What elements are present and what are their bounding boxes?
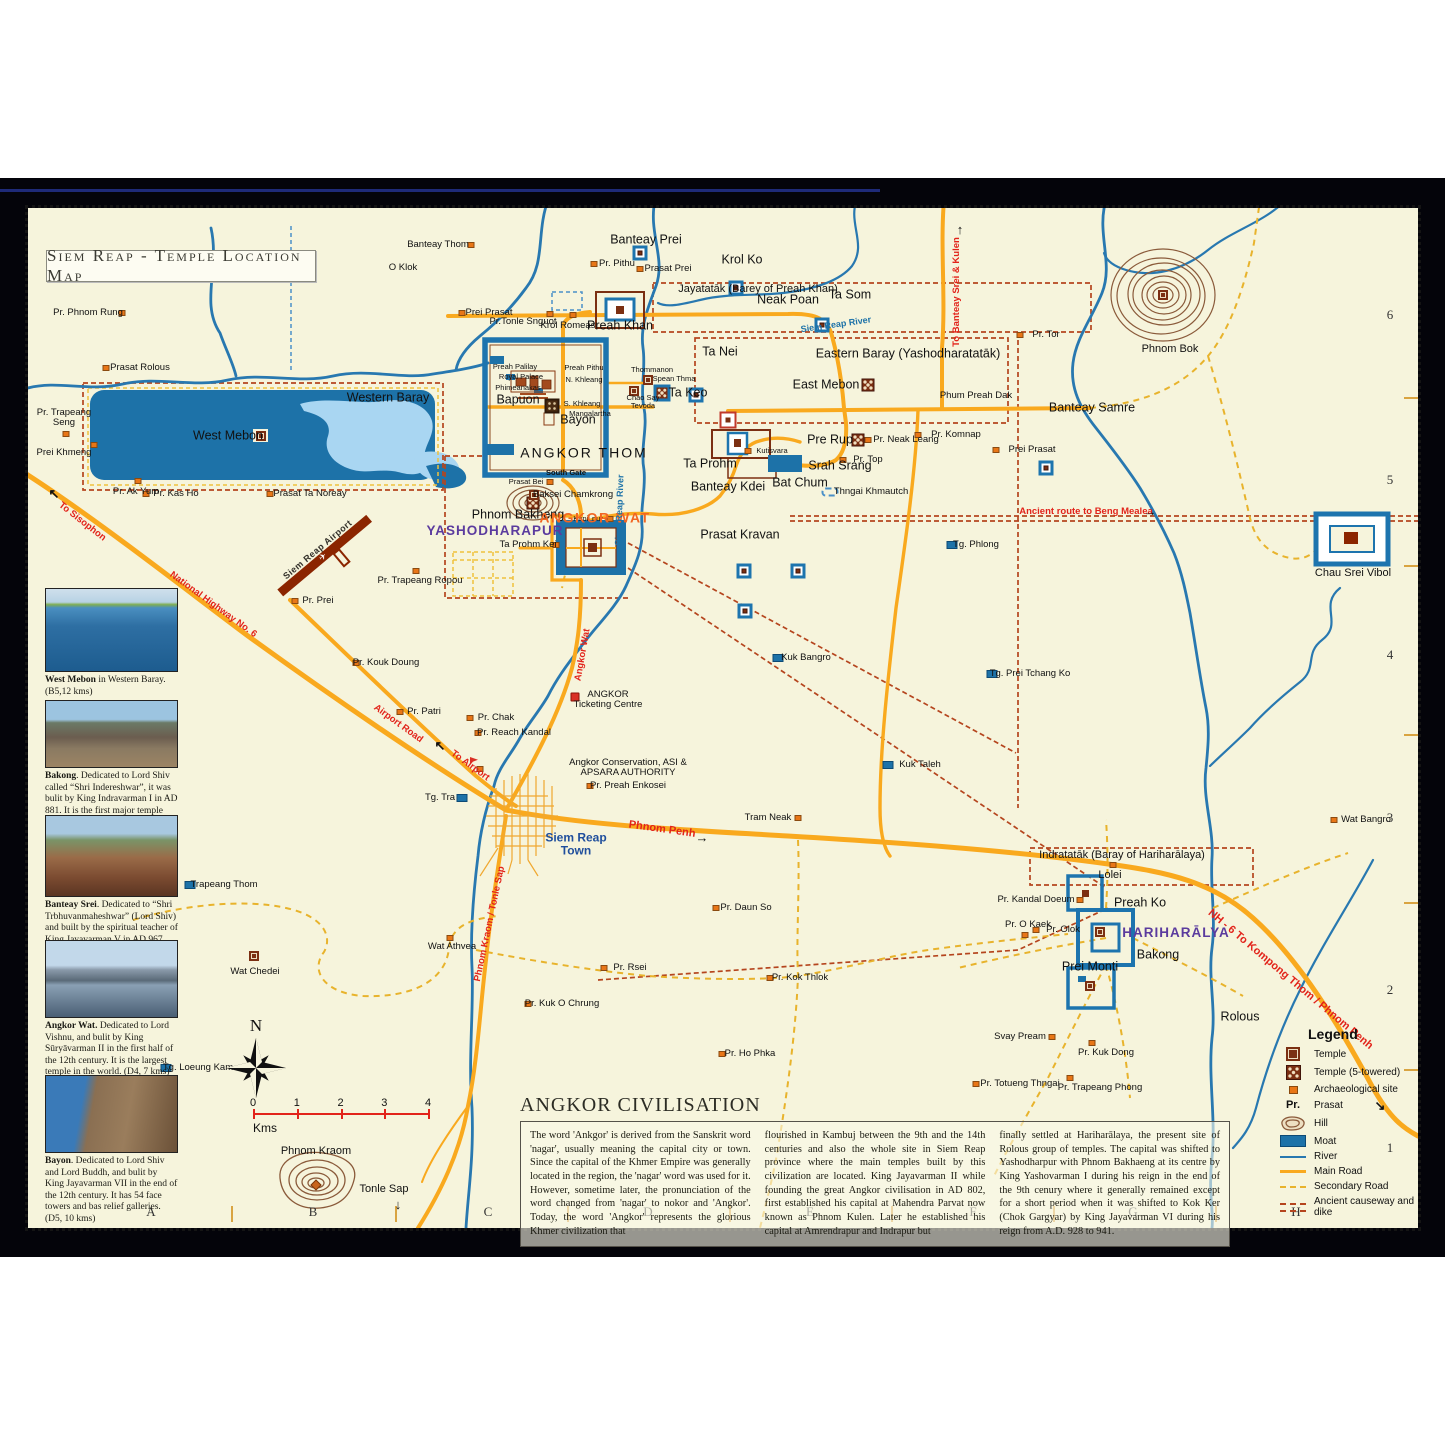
map-label: Pr. Kuk Dong	[1078, 1048, 1134, 1058]
map-label: HARIHARĀLYA	[1122, 926, 1230, 940]
map-label: Western Baray	[347, 391, 429, 404]
photo-caption: West Mebon in Western Baray. (B5,12 kms)	[45, 675, 178, 698]
map-label: Pr. Kas Ho	[153, 489, 198, 499]
page: ✈ Siem Reap - Temple Location Map Bantea…	[0, 0, 1445, 1445]
archaeological-site-icon	[973, 1081, 980, 1087]
map-label: S. Khleang	[564, 400, 601, 408]
map-label: Preah Palilay	[493, 363, 537, 371]
scale-tick-label: 4	[425, 1097, 431, 1109]
map-label: Thngai Khmautch	[834, 487, 908, 497]
map-label: Wat Chedei	[230, 967, 279, 977]
map-label: Tg. Prei Tchang Ko	[990, 669, 1071, 679]
archaeological-site-icon	[1110, 862, 1117, 868]
map-label: Spean Thma	[653, 375, 696, 383]
legend-item: Moat	[1280, 1135, 1418, 1147]
map-label: Prasat Rolous	[110, 363, 170, 373]
moat-icon	[1280, 1135, 1306, 1147]
map-label: Bapuon	[496, 393, 539, 406]
legend-item-label: Moat	[1314, 1136, 1336, 1147]
photo-caption: Bayon. Dedicated to Lord Shiv and Lord B…	[45, 1156, 178, 1225]
sidebar-photo-card: Bayon. Dedicated to Lord Shiv and Lord B…	[45, 1075, 178, 1225]
grid-column-label: B	[309, 1205, 318, 1219]
map-label: ANGKOR WAT	[539, 511, 650, 526]
archaeological-site-icon	[591, 261, 598, 267]
legend-item: Archaeological site	[1280, 1084, 1418, 1095]
map-label: Phnom Bok	[1142, 344, 1199, 356]
article-column: The word 'Ankgor' is derived from the Sa…	[530, 1129, 751, 1239]
map-label: Pr. Chak	[478, 713, 514, 723]
compass-star-icon	[224, 1036, 288, 1100]
legend-item: Pr.Prasat	[1280, 1099, 1418, 1111]
scale-tick	[341, 1109, 343, 1119]
map-label: Phimeanakas	[495, 384, 540, 392]
trapeang-icon	[457, 794, 468, 802]
temple-5-towered-icon	[862, 379, 875, 392]
legend-item-label: Archaeological site	[1314, 1084, 1398, 1095]
map-label: Preah Khan	[587, 319, 653, 332]
archaeological-site-icon	[1077, 897, 1084, 903]
article-text-box: The word 'Ankgor' is derived from the Sa…	[520, 1121, 1230, 1247]
map-label: Pr. Totueng Thngai	[980, 1079, 1059, 1089]
map-label: ANGKOR Ticketing Centre	[572, 690, 644, 710]
map-label: Phum Preah Dak	[940, 391, 1012, 401]
map-label: East Mebon	[793, 378, 860, 391]
moated-temple-icon	[737, 564, 752, 579]
map-label: Pr. Reach Kandal	[477, 728, 551, 738]
map-label: N. Khleang	[565, 376, 602, 384]
map-label: Phnom Kraom	[281, 1146, 351, 1158]
grid-row-label: 2	[1387, 983, 1394, 997]
map-label: Pr. Rsei	[613, 963, 646, 973]
temple-5-towered-icon	[852, 434, 865, 447]
main-road-icon	[1280, 1170, 1306, 1173]
temple-icon	[249, 951, 259, 961]
map-label: Ancient route to Beng Mealea	[1019, 507, 1153, 517]
map-label: Kutisvara	[756, 447, 787, 455]
archaeological-site-icon	[103, 365, 110, 371]
legend-item-label: Temple	[1314, 1049, 1346, 1060]
map-label: Prei Monti	[1062, 960, 1118, 973]
river-icon	[1280, 1156, 1306, 1158]
map-label: Pr. Olok	[1046, 925, 1080, 935]
photo-banteay-srei	[45, 815, 178, 897]
archaeological-site-icon	[135, 478, 142, 484]
photo-west-mebon	[45, 588, 178, 672]
srah-srang-water	[768, 455, 802, 472]
legend-item: Secondary Road	[1280, 1181, 1418, 1192]
scale-bar-line: 01234	[253, 1113, 429, 1115]
temple-icon	[1095, 927, 1105, 937]
map-label: Pr. Pithu	[599, 259, 635, 269]
map-label: West Mebon	[193, 429, 263, 442]
map-label: Tram Neak	[745, 813, 792, 823]
legend-item-label: Temple (5-towered)	[1314, 1067, 1400, 1078]
map-label: Pr. Daun So	[720, 903, 771, 913]
temple-icon	[1280, 1047, 1306, 1061]
archaeological-site-icon	[1089, 1040, 1096, 1046]
map-label: O Klok	[389, 263, 418, 273]
legend-item-label: Main Road	[1314, 1166, 1362, 1177]
scale-tick	[384, 1109, 386, 1119]
archaeological-site-icon	[91, 442, 98, 448]
map-label: ↑	[957, 223, 964, 237]
map-label: Pr. Kuk O Chrung	[525, 999, 599, 1009]
map-label: Tg. Tra	[425, 793, 455, 803]
map-label: Indratatāk (Baray of Hariharālaya)	[1039, 850, 1205, 862]
grid-row-label: 5	[1387, 473, 1394, 487]
scale-tick	[253, 1109, 255, 1119]
moated-temple-icon	[738, 604, 753, 619]
archaeological-site-icon	[795, 815, 802, 821]
map-label: Preah Ko	[1114, 896, 1166, 909]
map-label: Ta Nei	[702, 345, 737, 358]
map-label: Preah Pithu	[564, 364, 603, 372]
map-label: Trapeang Thom	[190, 880, 257, 890]
map-label: Wat Athvea	[428, 942, 476, 952]
legend-item-label: Ancient causeway and dike	[1314, 1196, 1418, 1218]
map-label: Banteay Kdei	[691, 480, 765, 493]
article-column: flourished in Kambuj between the 9th and…	[765, 1129, 986, 1239]
archaeological-site-icon	[993, 447, 1000, 453]
compass-north-label: N	[224, 1016, 288, 1036]
map-title-box: Siem Reap - Temple Location Map	[46, 250, 316, 282]
neak-poan-icon	[720, 412, 737, 429]
legend-item: Hill	[1280, 1115, 1418, 1131]
archaeological-site-icon	[1331, 817, 1338, 823]
map-label: Chau Srei Vibol	[1315, 568, 1391, 580]
map-label: Chao Say Tevoda	[626, 394, 660, 410]
map-label: Pr. O Kaek	[1005, 920, 1051, 930]
legend-item-label: Hill	[1314, 1118, 1328, 1129]
map-label: Srah Srang	[808, 459, 871, 472]
archaeological-site-icon	[865, 437, 872, 443]
compass-rose: N	[224, 1016, 288, 1105]
article-heading: ANGKOR CIVILISATION	[520, 1094, 1230, 1117]
legend-items: TempleTemple (5-towered)Archaeological s…	[1280, 1047, 1418, 1218]
photo-caption: Angkor Wat. Dedicated to Lord Vishnu, an…	[45, 1021, 178, 1079]
map-label: Bakong	[1137, 948, 1179, 961]
map-label: Banteay Samre	[1049, 401, 1135, 414]
temple-icon	[643, 375, 653, 385]
map-label: Prei Prasat	[1009, 445, 1056, 455]
map-label: →	[696, 831, 709, 845]
map-label: Siem Reap Town	[541, 831, 611, 856]
secondary-roads	[133, 208, 1348, 1228]
map-label: ↖	[435, 739, 446, 753]
map-label: Ta Keo	[669, 386, 708, 399]
hill-icon	[1280, 1115, 1306, 1131]
archaeological-site-icon	[292, 598, 299, 604]
map-label: Pr. Kok Thlok	[772, 973, 828, 983]
map-label: Pr. Neak Leang	[873, 435, 939, 445]
map-label: Prasat Bei	[509, 478, 544, 486]
map-label: Krol Ko	[722, 253, 763, 266]
legend: Legend TempleTemple (5-towered)Archaeolo…	[1280, 1026, 1418, 1222]
angkor-civilisation-article: ANGKOR CIVILISATION The word 'Ankgor' is…	[520, 1094, 1230, 1247]
chau-srei-vibol-complex	[1316, 514, 1388, 564]
western-baray-water	[90, 390, 466, 488]
map-frame: ✈ Siem Reap - Temple Location Map Bantea…	[0, 178, 1445, 1257]
grid-column-label: C	[484, 1205, 493, 1219]
map-label: Kuk Taleh	[899, 760, 941, 770]
map-label: Pr. Trapeang Phong	[1058, 1083, 1143, 1093]
map-label: Pr. Phnom Rung	[53, 308, 123, 318]
temple-5-towered-icon	[1280, 1065, 1306, 1080]
legend-item-label: Prasat	[1314, 1100, 1343, 1111]
siem-reap-map: ✈ Siem Reap - Temple Location Map Bantea…	[28, 208, 1418, 1228]
map-label: Pr. Trapeang Ropou	[377, 576, 462, 586]
map-label: Thommanon	[631, 366, 673, 374]
map-label: Pr. Ak Yum	[113, 487, 159, 497]
legend-item-label: Secondary Road	[1314, 1181, 1389, 1192]
scale-tick	[297, 1109, 299, 1119]
archaeological-site-icon	[745, 448, 752, 454]
map-label: Pr. Prei	[302, 596, 333, 606]
temple-icon	[1085, 981, 1095, 991]
map-label: Pr. Kouk Doung	[353, 658, 420, 668]
map-label: Eastern Baray (Yashodharatatāk)	[816, 347, 1001, 360]
photo-bakong	[45, 700, 178, 768]
article-column: finally settled at Hariharālaya, the pre…	[999, 1129, 1220, 1239]
map-label: Angkor Conservation, ASI & APSARA AUTHOR…	[558, 758, 698, 778]
map-label: ↖	[49, 487, 60, 501]
photo-bayon	[45, 1075, 178, 1153]
prasat-abbreviation: Pr.	[1280, 1099, 1306, 1111]
scale-bar: 01234 Kms	[253, 1101, 429, 1135]
map-label: Svay Pream	[994, 1032, 1046, 1042]
archaeological-site-icon	[570, 312, 577, 318]
sidebar-photo-card: West Mebon in Western Baray. (B5,12 kms)	[45, 588, 178, 698]
secondary-road-icon	[1280, 1186, 1306, 1188]
map-label: Prasat Kravan	[700, 528, 779, 541]
photo-angkor-wat	[45, 940, 178, 1018]
frame-accent-line	[0, 189, 880, 192]
archaeological-site-icon	[547, 479, 554, 485]
archaeological-site-icon	[1022, 932, 1029, 938]
sidebar-photo-card: Angkor Wat. Dedicated to Lord Vishnu, an…	[45, 940, 178, 1079]
map-label: To Banteay Srei & Kulen	[952, 237, 962, 347]
map-label: Neak Poan	[757, 293, 819, 306]
map-label: Pr. Komnap	[931, 430, 981, 440]
scale-tick-label: 3	[381, 1097, 387, 1109]
map-label: Pr. Preah Enkosei	[590, 781, 666, 791]
map-label: Pr. Kandal Doeum	[997, 895, 1074, 905]
scale-tick	[428, 1109, 430, 1119]
legend-item: Temple	[1280, 1047, 1418, 1061]
map-label: YASHODHARAPUR	[426, 524, 563, 538]
ancient-causeway-icon	[1280, 1203, 1306, 1212]
archaeological-site-icon	[1017, 332, 1024, 338]
map-label: Pr. Trapeang Seng	[35, 408, 93, 428]
legend-title: Legend	[1308, 1026, 1418, 1042]
map-title: Siem Reap - Temple Location Map	[47, 246, 315, 286]
temple-icon	[1158, 290, 1168, 300]
map-label: Bat Chum	[772, 476, 828, 489]
map-label: Prasat Ta Noreay	[273, 489, 346, 499]
map-label: Kuk Bangro	[781, 653, 831, 663]
grid-row-label: 3	[1387, 811, 1394, 825]
map-label: Pr. Tor	[1032, 330, 1059, 340]
grid-row-label: 4	[1387, 648, 1394, 662]
map-label: Bayon	[560, 413, 595, 426]
legend-item: Ancient causeway and dike	[1280, 1196, 1418, 1218]
map-label: Prei Khmeng	[37, 448, 92, 458]
map-label: Ta Som	[829, 288, 871, 301]
map-label: Baksei Chamkrong	[533, 490, 613, 500]
archaeological-site-icon	[397, 709, 404, 715]
legend-item: River	[1280, 1151, 1418, 1162]
scale-tick-label: 0	[250, 1097, 256, 1109]
map-label: Wat Bangro	[1341, 815, 1391, 825]
map-label: Tg. Phlong	[953, 540, 999, 550]
map-label: Royal Palace	[499, 373, 543, 381]
map-label: Pre Rup	[807, 433, 853, 446]
map-label: →	[1144, 505, 1157, 519]
map-label: Banteay Prei	[610, 233, 682, 246]
map-label: Ta Prohm	[683, 457, 737, 470]
map-label: Tonle Sap	[360, 1184, 409, 1196]
archaeological-site-icon	[713, 905, 720, 911]
archaeological-site-icon	[1280, 1086, 1306, 1094]
sidebar-photo-card: Banteay Srei. Dedicated to “Shri Trbhuva…	[45, 815, 178, 958]
map-label: ↓	[395, 1198, 402, 1212]
bayon-icon	[545, 399, 560, 414]
map-label: Rolous	[1221, 1010, 1260, 1023]
legend-item: Temple (5-towered)	[1280, 1065, 1418, 1080]
archaeological-site-icon	[459, 310, 466, 316]
archaeological-site-icon	[1067, 1075, 1074, 1081]
map-label: Lolei	[1098, 870, 1121, 882]
map-label: Prasat Prei	[645, 264, 692, 274]
legend-item: Main Road	[1280, 1166, 1418, 1177]
trapeang-icon	[883, 761, 894, 769]
moated-temple-icon	[791, 564, 806, 579]
moated-temple-icon	[1039, 461, 1054, 476]
archaeological-site-icon	[413, 568, 420, 574]
archaeological-site-icon	[601, 965, 608, 971]
scale-tick-label: 2	[337, 1097, 343, 1109]
archaeological-site-icon	[637, 266, 644, 272]
map-label: Banteay Thom	[407, 240, 469, 250]
map-label: Ta Prohm Kei	[499, 540, 556, 550]
scale-bar-unit: Kms	[253, 1121, 429, 1135]
map-label: Pr. Ho Phka	[725, 1049, 776, 1059]
scale-tick-label: 1	[294, 1097, 300, 1109]
archaeological-site-icon	[63, 431, 70, 437]
legend-item-label: River	[1314, 1151, 1337, 1162]
map-label: South Gate	[546, 469, 586, 477]
archaeological-site-icon	[1049, 1034, 1056, 1040]
map-label: ANGKOR THOM	[520, 446, 648, 461]
map-label: Pr. Patri	[407, 707, 441, 717]
archaeological-site-icon	[467, 715, 474, 721]
grid-row-label: 6	[1387, 308, 1394, 322]
